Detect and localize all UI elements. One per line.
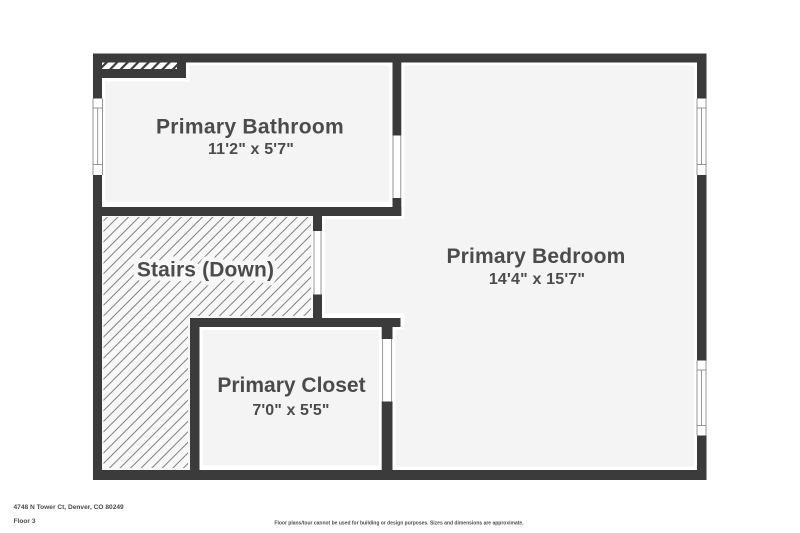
svg-text:Primary Bedroom: Primary Bedroom — [446, 245, 625, 268]
svg-text:11'2" x 5'7": 11'2" x 5'7" — [208, 141, 294, 158]
svg-text:14'4" x 15'7": 14'4" x 15'7" — [489, 271, 585, 288]
svg-text:Floor 3: Floor 3 — [14, 518, 36, 525]
svg-text:Floor plans/tour cannot be use: Floor plans/tour cannot be used for buil… — [274, 521, 524, 527]
svg-text:7'0" x 5'5": 7'0" x 5'5" — [252, 402, 329, 419]
svg-text:Primary Closet: Primary Closet — [217, 374, 365, 397]
svg-text:Primary Bathroom: Primary Bathroom — [156, 116, 344, 139]
svg-text:Stairs (Down): Stairs (Down) — [137, 259, 274, 282]
svg-text:4748 N Tower Ct, Denver, CO 80: 4748 N Tower Ct, Denver, CO 80249 — [14, 504, 125, 511]
